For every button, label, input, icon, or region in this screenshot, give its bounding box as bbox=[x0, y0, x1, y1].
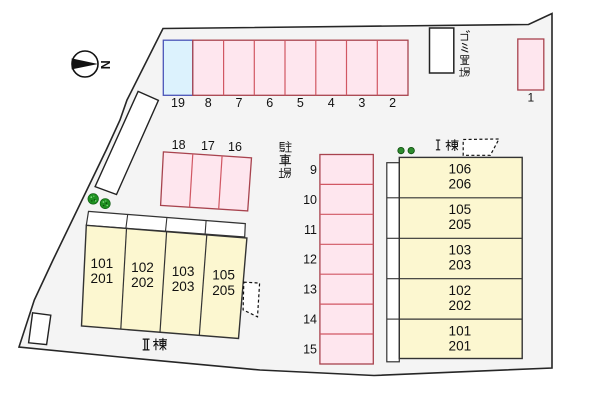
svg-text:N: N bbox=[98, 60, 112, 69]
svg-text:201: 201 bbox=[449, 338, 472, 353]
svg-text:102: 102 bbox=[449, 283, 472, 298]
svg-text:3: 3 bbox=[358, 96, 365, 110]
svg-text:13: 13 bbox=[303, 283, 317, 297]
svg-text:101: 101 bbox=[91, 256, 114, 271]
svg-text:203: 203 bbox=[172, 279, 195, 294]
svg-text:105: 105 bbox=[212, 268, 235, 283]
svg-text:202: 202 bbox=[449, 298, 472, 313]
svg-text:6: 6 bbox=[266, 96, 273, 110]
svg-text:203: 203 bbox=[449, 258, 472, 273]
svg-text:14: 14 bbox=[303, 313, 317, 327]
svg-text:106: 106 bbox=[449, 162, 472, 177]
svg-text:19: 19 bbox=[171, 96, 185, 110]
svg-text:7: 7 bbox=[236, 96, 243, 110]
svg-text:102: 102 bbox=[131, 260, 154, 275]
svg-text:17: 17 bbox=[201, 139, 215, 153]
svg-text:15: 15 bbox=[303, 342, 317, 356]
svg-text:205: 205 bbox=[212, 283, 235, 298]
svg-text:10: 10 bbox=[303, 193, 317, 207]
svg-text:205: 205 bbox=[449, 217, 472, 232]
svg-text:5: 5 bbox=[297, 96, 304, 110]
svg-text:103: 103 bbox=[172, 264, 195, 279]
svg-text:4: 4 bbox=[328, 96, 335, 110]
svg-text:11: 11 bbox=[304, 223, 317, 237]
svg-text:8: 8 bbox=[205, 96, 212, 110]
svg-text:103: 103 bbox=[449, 243, 472, 258]
svg-text:105: 105 bbox=[449, 202, 472, 217]
svg-text:9: 9 bbox=[310, 163, 317, 177]
svg-text:16: 16 bbox=[228, 140, 242, 154]
svg-text:206: 206 bbox=[449, 177, 472, 192]
svg-text:12: 12 bbox=[303, 253, 317, 267]
svg-text:101: 101 bbox=[449, 323, 472, 338]
svg-text:18: 18 bbox=[172, 138, 186, 152]
svg-text:2: 2 bbox=[389, 96, 396, 110]
svg-text:201: 201 bbox=[91, 271, 114, 286]
svg-text:1: 1 bbox=[527, 91, 534, 105]
svg-text:202: 202 bbox=[131, 275, 154, 290]
